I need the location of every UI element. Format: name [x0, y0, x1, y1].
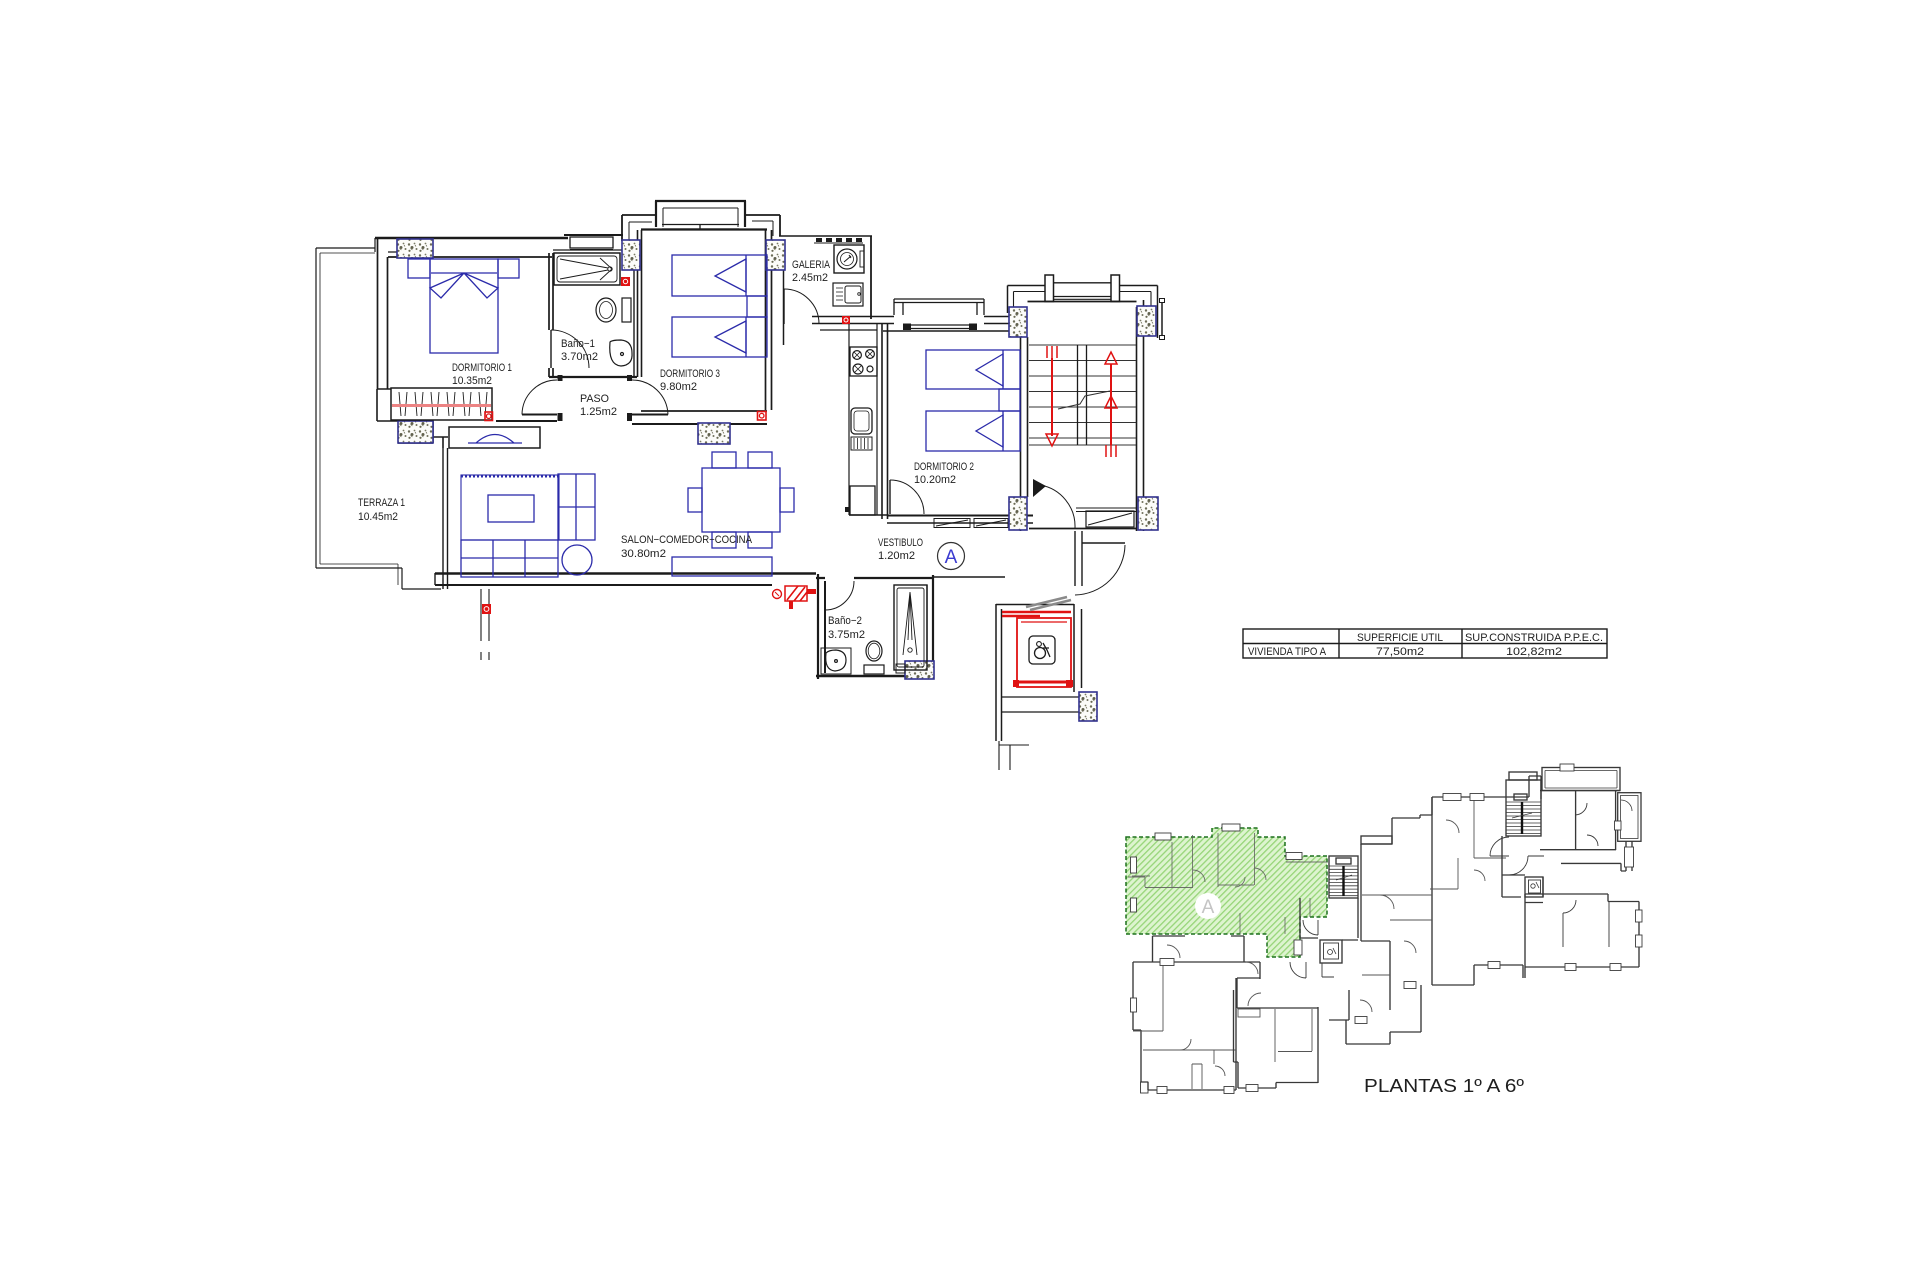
- svg-text:A: A: [945, 547, 958, 568]
- svg-text:Baño−1: Baño−1: [561, 338, 595, 350]
- svg-text:9.80m2: 9.80m2: [660, 381, 697, 393]
- svg-text:GALERIA: GALERIA: [792, 259, 831, 271]
- svg-text:1.25m2: 1.25m2: [580, 406, 617, 418]
- svg-text:DORMITORIO 3: DORMITORIO 3: [660, 368, 720, 380]
- svg-text:VESTIBULO: VESTIBULO: [878, 537, 923, 549]
- svg-text:3.75m2: 3.75m2: [828, 629, 865, 641]
- svg-text:SUP.CONSTRUIDA P.P.E.C.: SUP.CONSTRUIDA P.P.E.C.: [1465, 632, 1603, 644]
- svg-text:3.70m2: 3.70m2: [561, 351, 598, 363]
- svg-text:10.35m2: 10.35m2: [452, 375, 492, 387]
- svg-text:Baño−2: Baño−2: [828, 615, 862, 627]
- svg-text:30.80m2: 30.80m2: [621, 548, 666, 560]
- svg-text:VIVIENDA TIPO A: VIVIENDA TIPO A: [1248, 646, 1327, 658]
- svg-text:77,50m2: 77,50m2: [1376, 646, 1424, 658]
- svg-text:SUPERFICIE UTIL: SUPERFICIE UTIL: [1357, 632, 1443, 644]
- svg-text:2.45m2: 2.45m2: [792, 272, 828, 284]
- svg-text:SALON−COMEDOR−COCINA: SALON−COMEDOR−COCINA: [621, 534, 753, 546]
- svg-text:10.20m2: 10.20m2: [914, 474, 956, 486]
- svg-text:TERRAZA 1: TERRAZA 1: [358, 497, 405, 509]
- svg-text:102,82m2: 102,82m2: [1506, 646, 1562, 658]
- svg-text:PLANTAS 1º A 6º: PLANTAS 1º A 6º: [1364, 1075, 1524, 1096]
- svg-text:1.20m2: 1.20m2: [878, 550, 915, 562]
- svg-text:PASO: PASO: [580, 393, 609, 405]
- svg-text:DORMITORIO 1: DORMITORIO 1: [452, 362, 512, 374]
- svg-text:DORMITORIO 2: DORMITORIO 2: [914, 461, 974, 473]
- svg-text:A: A: [1202, 897, 1215, 918]
- svg-text:10.45m2: 10.45m2: [358, 511, 398, 523]
